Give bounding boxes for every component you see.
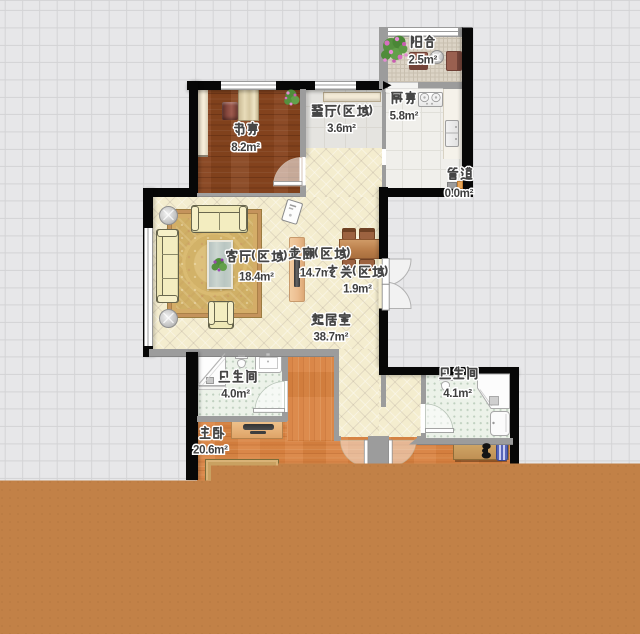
svg-text:5.8m²: 5.8m² — [390, 111, 419, 123]
svg-text:20.6m²: 20.6m² — [193, 445, 228, 457]
svg-text:2.5m²: 2.5m² — [409, 55, 438, 67]
svg-text:18.4m²: 18.4m² — [239, 272, 274, 284]
svg-text:38.7m²: 38.7m² — [314, 332, 349, 344]
svg-text:8.2m²: 8.2m² — [231, 142, 260, 154]
svg-text:0.0m²: 0.0m² — [445, 188, 474, 200]
svg-text:1.9m²: 1.9m² — [343, 283, 372, 295]
svg-text:4.1m²: 4.1m² — [443, 388, 472, 400]
svg-text:3.6m²: 3.6m² — [327, 123, 356, 135]
svg-text:4.0m²: 4.0m² — [221, 389, 250, 401]
